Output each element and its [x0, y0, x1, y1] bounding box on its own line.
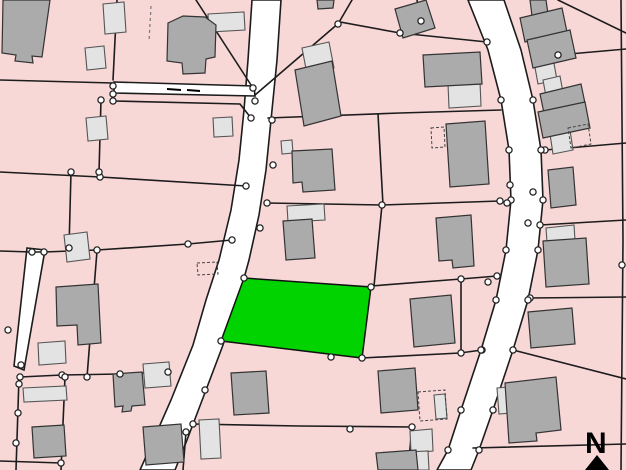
survey-node [484, 39, 490, 45]
survey-node [252, 98, 258, 104]
survey-node [257, 225, 263, 231]
survey-node [445, 447, 451, 453]
north-label: N [585, 427, 607, 460]
survey-node [368, 284, 374, 290]
road-center-dash [187, 90, 200, 91]
survey-node [41, 249, 47, 255]
survey-node [229, 237, 235, 243]
outbuilding [213, 117, 233, 137]
survey-node [538, 147, 544, 153]
survey-node [525, 220, 531, 226]
building [231, 371, 269, 415]
survey-node [328, 354, 334, 360]
survey-node [498, 97, 504, 103]
survey-node [218, 338, 224, 344]
outbuilding [281, 140, 293, 154]
building [543, 238, 589, 287]
survey-node [497, 198, 503, 204]
survey-node [490, 407, 496, 413]
survey-node [264, 200, 270, 206]
building [423, 52, 482, 87]
building [376, 450, 418, 470]
survey-node [458, 350, 464, 356]
survey-node [409, 424, 415, 430]
survey-node [494, 273, 500, 279]
survey-node [503, 247, 509, 253]
survey-node [250, 85, 256, 91]
map-canvas[interactable]: N [0, 0, 626, 470]
parcel-boundary-line [530, 297, 626, 298]
survey-node [98, 97, 104, 103]
survey-node [506, 147, 512, 153]
survey-node [530, 189, 536, 195]
survey-node [117, 371, 123, 377]
survey-node [96, 169, 102, 175]
building [436, 215, 474, 268]
survey-node [530, 97, 536, 103]
survey-node [478, 347, 484, 353]
survey-node [485, 279, 491, 285]
survey-node [270, 162, 276, 168]
outbuilding [410, 429, 433, 453]
building [446, 121, 489, 187]
survey-node [17, 374, 23, 380]
outbuilding [38, 341, 66, 365]
survey-node [535, 247, 541, 253]
survey-node [110, 98, 116, 104]
survey-node [68, 169, 74, 175]
survey-node [458, 407, 464, 413]
survey-node [110, 91, 116, 97]
survey-node [18, 362, 24, 368]
survey-node [202, 387, 208, 393]
survey-node [15, 410, 21, 416]
survey-node [458, 276, 464, 282]
survey-node [190, 421, 196, 427]
survey-node [347, 426, 353, 432]
survey-node [335, 21, 341, 27]
survey-node [359, 355, 365, 361]
survey-node [185, 241, 191, 247]
survey-node [13, 440, 19, 446]
survey-node [504, 200, 510, 206]
cadastral-map-viewer: N [0, 0, 626, 470]
survey-node [241, 275, 247, 281]
building [378, 368, 418, 413]
survey-node [507, 182, 513, 188]
survey-node [66, 245, 72, 251]
survey-node [243, 183, 249, 189]
survey-node [476, 447, 482, 453]
survey-node [29, 249, 35, 255]
survey-node [165, 369, 171, 375]
building [410, 295, 455, 347]
survey-node [269, 117, 275, 123]
survey-node [58, 460, 64, 466]
survey-node [493, 297, 499, 303]
building [548, 167, 576, 208]
survey-node [537, 222, 543, 228]
survey-node [94, 247, 100, 253]
survey-node [84, 374, 90, 380]
survey-node [525, 297, 531, 303]
road-center-dash [167, 89, 181, 90]
building [528, 308, 575, 348]
building [2, 0, 50, 63]
outbuilding [86, 116, 108, 141]
survey-node [379, 202, 385, 208]
survey-node [16, 381, 22, 387]
survey-node [555, 52, 561, 58]
building [295, 61, 341, 126]
survey-node [110, 83, 116, 89]
outbuilding [199, 419, 221, 459]
building [317, 0, 334, 9]
outbuilding [434, 394, 447, 419]
survey-node [540, 197, 546, 203]
survey-node [5, 327, 11, 333]
building [283, 219, 315, 260]
survey-node [418, 18, 424, 24]
building [143, 424, 184, 465]
survey-node [510, 347, 516, 353]
outbuilding [85, 46, 106, 70]
building [32, 425, 66, 458]
survey-node [397, 30, 403, 36]
survey-node [62, 374, 68, 380]
survey-node [248, 115, 254, 121]
outbuilding [23, 386, 67, 402]
survey-node [183, 429, 189, 435]
survey-node [619, 262, 625, 268]
outbuilding [103, 2, 126, 34]
